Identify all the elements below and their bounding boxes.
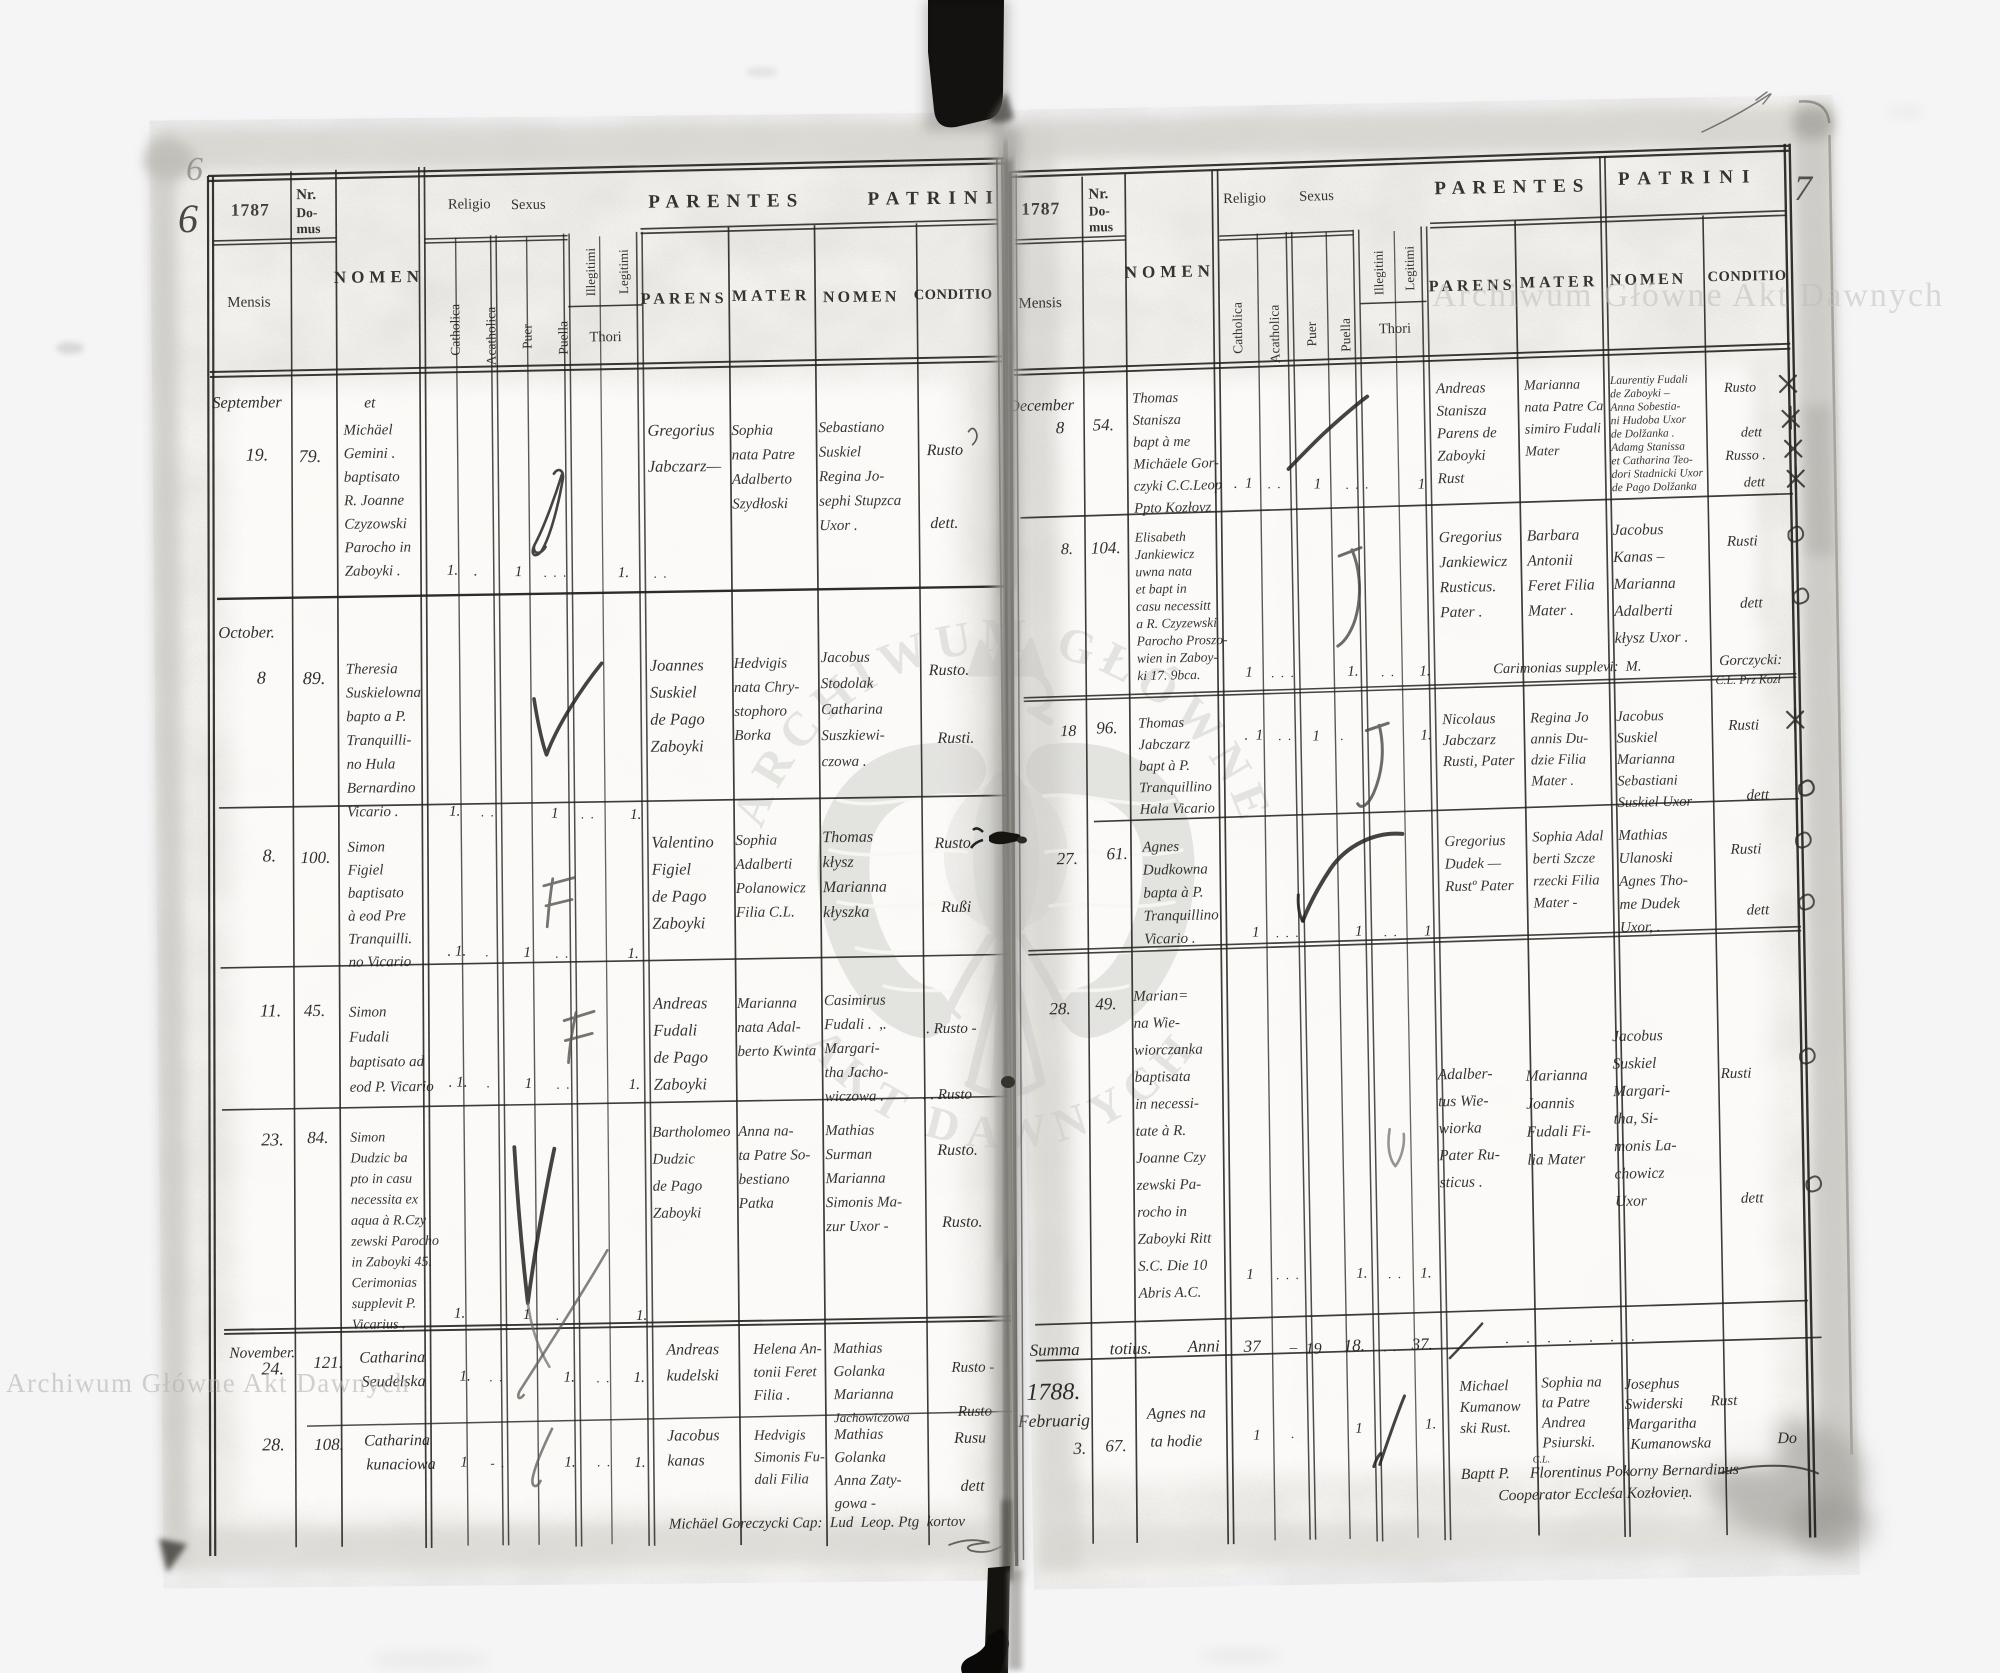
svg-text:Stanisza: Stanisza: [1436, 403, 1486, 420]
svg-text:Vicario .: Vicario .: [1144, 931, 1196, 948]
svg-text:Puella: Puella: [1338, 318, 1354, 352]
svg-text:totius.: totius.: [1109, 1339, 1151, 1359]
svg-text:me Dudek: me Dudek: [1619, 896, 1680, 913]
svg-text:Catholica: Catholica: [447, 304, 462, 356]
svg-text:. . .: . . .: [544, 565, 567, 580]
svg-text:Nr.: Nr.: [1088, 186, 1108, 202]
svg-text:19.: 19.: [246, 444, 269, 464]
svg-text:1: 1: [1253, 1428, 1261, 1444]
svg-text:Dudzic ba: Dudzic ba: [349, 1151, 407, 1167]
svg-text:Rusu: Rusu: [953, 1430, 986, 1447]
svg-text:1787: 1787: [231, 199, 270, 219]
svg-text:Marianna: Marianna: [1523, 378, 1580, 394]
svg-text:Mater -: Mater -: [1532, 895, 1577, 912]
svg-text:7: 7: [1794, 168, 1814, 208]
svg-text:Agnes: Agnes: [1141, 839, 1179, 856]
svg-text:bestiano: bestiano: [739, 1171, 790, 1187]
svg-text:Nr.: Nr.: [296, 187, 316, 203]
svg-text:kłysz Uxor .: kłysz Uxor .: [1615, 629, 1689, 647]
svg-text:. 1: . 1: [1234, 476, 1253, 492]
svg-text:Simon: Simon: [350, 1130, 385, 1145]
svg-text:dett: dett: [1741, 1190, 1765, 1206]
svg-text:bapta à P.: bapta à P.: [1143, 885, 1203, 902]
svg-text:45.: 45.: [304, 1001, 325, 1020]
svg-text:Mathias: Mathias: [1617, 827, 1668, 844]
svg-text:NOMEN: NOMEN: [1125, 261, 1216, 282]
svg-text:Kanas –: Kanas –: [1612, 548, 1665, 566]
svg-text:Illegitini: Illegitini: [1371, 250, 1387, 295]
svg-text:et bapt in: et bapt in: [1136, 581, 1188, 597]
svg-text:Michael: Michael: [1458, 1378, 1508, 1395]
svg-text:1787: 1787: [1021, 198, 1060, 219]
svg-text:Baptt P.: Baptt P.: [1461, 1465, 1510, 1483]
svg-text:Swiderski: Swiderski: [1625, 1396, 1684, 1413]
svg-text:Uxor .: Uxor .: [819, 518, 857, 534]
svg-text:1.: 1.: [627, 946, 638, 962]
svg-text:1.: 1.: [1356, 1266, 1368, 1282]
svg-text:kanas: kanas: [667, 1452, 704, 1469]
svg-text:Theresia: Theresia: [346, 661, 398, 677]
svg-text:de Pago Dolžanka: de Pago Dolžanka: [1612, 481, 1697, 495]
svg-text:Mathias: Mathias: [832, 1341, 882, 1357]
svg-text:.: .: [485, 944, 488, 959]
svg-text:Fudali: Fudali: [652, 1020, 698, 1039]
svg-text:Simon: Simon: [349, 1004, 387, 1020]
svg-text:zewski Pa-: zewski Pa-: [1135, 1177, 1201, 1194]
svg-text:Agnes Tho-: Agnes Tho-: [1618, 873, 1688, 890]
svg-text:dett: dett: [961, 1478, 986, 1495]
svg-text:rocho in: rocho in: [1137, 1204, 1187, 1221]
svg-text:October.: October.: [218, 622, 275, 642]
svg-text:Margari-: Margari-: [823, 1041, 879, 1058]
svg-text:Patka: Patka: [738, 1196, 774, 1212]
svg-text:. Rusto -: . Rusto -: [926, 1021, 977, 1037]
svg-text:Dudkowna: Dudkowna: [1142, 861, 1208, 878]
svg-text:1: 1: [460, 1455, 468, 1471]
svg-text:Laurentiy Fudali: Laurentiy Fudali: [1609, 374, 1688, 387]
svg-text:Fudali . ,.: Fudali . ,.: [823, 1017, 887, 1034]
svg-text:. .: . .: [557, 1077, 570, 1092]
svg-text:Jachowiczowa: Jachowiczowa: [834, 1409, 910, 1425]
svg-text:Jacobus: Jacobus: [1616, 708, 1664, 725]
svg-text:1.: 1.: [1419, 663, 1431, 679]
svg-text:Anna Sobestia-: Anna Sobestia-: [1609, 401, 1680, 414]
svg-text:Surman: Surman: [825, 1147, 872, 1163]
svg-text:Thori: Thori: [589, 329, 621, 345]
svg-text:de Pago: de Pago: [653, 1047, 708, 1067]
svg-text:Tranquilli-: Tranquilli-: [346, 732, 411, 749]
svg-text:baptisato ad: baptisato ad: [349, 1054, 424, 1071]
svg-text:nata Patre: nata Patre: [732, 447, 796, 464]
svg-text:. 1: . 1: [1244, 727, 1263, 743]
svg-text:Michäele Gor-: Michäele Gor-: [1132, 455, 1219, 473]
svg-text:Rusti: Rusti: [1720, 1066, 1752, 1083]
svg-text:de Zaboyki –: de Zaboyki –: [1610, 387, 1670, 400]
svg-text:nata Patre Ca: nata Patre Ca: [1524, 399, 1603, 415]
svg-text:Kumanow: Kumanow: [1459, 1399, 1521, 1416]
svg-text:Jacobus: Jacobus: [821, 650, 870, 666]
svg-text:Adamg Stanissa: Adamg Stanissa: [1610, 441, 1685, 454]
svg-text:Bartholomeo: Bartholomeo: [652, 1124, 731, 1141]
svg-text:à eod Pre: à eod Pre: [348, 908, 406, 925]
svg-text:. .: . .: [1268, 476, 1281, 491]
svg-text:96.: 96.: [1096, 718, 1118, 737]
svg-text:Simonis Ma-: Simonis Ma-: [826, 1194, 902, 1211]
svg-text:dzie Filia: dzie Filia: [1531, 752, 1586, 769]
svg-text:Andreas: Andreas: [652, 993, 708, 1013]
svg-text:Nicolaus: Nicolaus: [1441, 711, 1496, 728]
svg-text:mus: mus: [296, 221, 320, 236]
svg-text:. . .: . . .: [1276, 925, 1299, 940]
svg-text:NOMEN: NOMEN: [823, 288, 899, 306]
svg-text:Casimirus: Casimirus: [824, 993, 886, 1010]
svg-text:3.: 3.: [1072, 1439, 1086, 1458]
svg-text:Figiel: Figiel: [347, 862, 384, 878]
svg-text:1: 1: [1245, 665, 1253, 681]
svg-text:1: 1: [515, 564, 523, 580]
svg-text:Uxor: Uxor: [1615, 1192, 1648, 1210]
svg-text:ta Patre: ta Patre: [1542, 1395, 1591, 1412]
svg-text:de Dolžanka .: de Dolžanka .: [1611, 427, 1675, 440]
svg-text:11.: 11.: [260, 1000, 281, 1020]
svg-text:1: 1: [1252, 925, 1260, 941]
svg-text:ki 17. 9bca.: ki 17. 9bca.: [1137, 667, 1200, 683]
svg-text:8: 8: [257, 667, 266, 687]
svg-text:kłysz: kłysz: [823, 854, 855, 871]
svg-text:Catharina: Catharina: [359, 1349, 425, 1367]
svg-text:Stodolak: Stodolak: [821, 676, 874, 693]
svg-text:Marianna: Marianna: [736, 995, 797, 1012]
svg-text:Jacobus: Jacobus: [667, 1427, 720, 1445]
svg-text:C.L. Prz Kozł: C.L. Prz Kozł: [1715, 672, 1781, 687]
svg-text:19: 19: [1306, 1340, 1322, 1357]
svg-text:annis Du-: annis Du-: [1530, 730, 1588, 747]
svg-text:ski Rust.: ski Rust.: [1460, 1420, 1511, 1437]
svg-text:Figiel: Figiel: [651, 859, 692, 878]
svg-text:1.: 1.: [633, 1370, 644, 1386]
svg-text:Jabczarz: Jabczarz: [1442, 732, 1496, 749]
svg-text:nata Chry-: nata Chry-: [734, 679, 800, 696]
svg-text:100.: 100.: [300, 848, 330, 867]
svg-text:Zaboyki: Zaboyki: [652, 913, 706, 933]
svg-text:tus Wie-: tus Wie-: [1438, 1092, 1489, 1110]
svg-text:dett: dett: [1746, 787, 1770, 803]
svg-text:Marianna: Marianna: [1616, 751, 1675, 768]
svg-text:Michäel Goreczycki Cap: Lud: Michäel Goreczycki Cap: Lud Leop. Ptg ko…: [668, 1514, 966, 1533]
svg-text:Sophia: Sophia: [735, 833, 777, 849]
svg-text:- .: - .: [490, 1455, 504, 1470]
svg-text:Rusto.: Rusto.: [936, 1142, 978, 1159]
svg-text:Zaboyki .: Zaboyki .: [345, 563, 401, 580]
svg-text:Rusto: Rusto: [957, 1404, 993, 1420]
svg-text:Parens de: Parens de: [1436, 425, 1497, 442]
svg-text:mus: mus: [1089, 219, 1113, 234]
svg-text:dett: dett: [1741, 425, 1763, 440]
svg-text:Anna Zaty-: Anna Zaty-: [833, 1472, 901, 1489]
svg-text:8.: 8.: [1061, 541, 1073, 558]
svg-text:Gemini .: Gemini .: [344, 446, 396, 462]
svg-text:1: 1: [1314, 476, 1322, 492]
svg-text:. .: . .: [1383, 1339, 1396, 1354]
svg-text:18.: 18.: [1343, 1336, 1365, 1355]
svg-text:Religio: Religio: [1223, 190, 1266, 207]
svg-text:Mathias: Mathias: [824, 1123, 874, 1139]
svg-text:Sophia Adal: Sophia Adal: [1532, 828, 1603, 845]
svg-text:Valentino: Valentino: [651, 832, 714, 852]
svg-text:Gorczycki:: Gorczycki:: [1719, 652, 1782, 669]
svg-text:6: 6: [186, 151, 203, 188]
svg-text:ta Patre So-: ta Patre So-: [738, 1147, 810, 1164]
svg-text:Filia .: Filia .: [753, 1387, 791, 1403]
svg-text:Catharina: Catharina: [364, 1432, 430, 1450]
svg-text:Puer: Puer: [519, 324, 534, 349]
svg-text:Suszkiewi-: Suszkiewi-: [821, 728, 884, 745]
svg-text:Suskiel Uxor: Suskiel Uxor: [1618, 794, 1693, 811]
svg-text:1.: 1.: [630, 807, 641, 823]
svg-text:Margari-: Margari-: [1612, 1082, 1670, 1100]
svg-text:Thori: Thori: [1379, 321, 1412, 338]
svg-text:Mater .: Mater .: [1527, 602, 1574, 620]
svg-text:Do-: Do-: [296, 205, 317, 220]
svg-text:Hedvigis: Hedvigis: [753, 1427, 806, 1444]
svg-text:eod P. Vicario: eod P. Vicario: [350, 1079, 435, 1096]
svg-text:Jankiewicz: Jankiewicz: [1135, 546, 1195, 562]
svg-text:Illegitimi: Illegitimi: [583, 248, 598, 297]
svg-text:Russo .: Russo .: [1724, 448, 1766, 464]
svg-text:Thomas: Thomas: [1138, 715, 1185, 732]
svg-text:Golanka: Golanka: [834, 1450, 886, 1466]
svg-text:1.: 1.: [1420, 727, 1432, 743]
svg-text:1.: 1.: [634, 1455, 645, 1471]
svg-text:Marianna: Marianna: [833, 1386, 894, 1403]
svg-text:Hala Vicario: Hala Vicario: [1139, 800, 1215, 817]
svg-text:tate à R.: tate à R.: [1136, 1123, 1187, 1140]
svg-text:dett.: dett.: [930, 515, 958, 532]
svg-text:in necessi-: in necessi-: [1135, 1096, 1199, 1113]
svg-text:Rust: Rust: [1437, 471, 1466, 488]
svg-text:Pater Ru-: Pater Ru-: [1438, 1146, 1500, 1164]
svg-text:Archiwum Główne Akt Dawnych: Archiwum Główne Akt Dawnych: [1432, 277, 1944, 314]
svg-text:Mater: Mater: [1524, 444, 1560, 460]
svg-text:Thomas: Thomas: [822, 829, 873, 846]
svg-text:Summa: Summa: [1029, 1340, 1079, 1360]
svg-text:1.: 1.: [636, 1308, 647, 1324]
svg-text:et Catharina Teo-: et Catharina Teo-: [1611, 454, 1693, 467]
svg-text:89.: 89.: [303, 668, 326, 688]
svg-text:na Wie-: na Wie-: [1134, 1015, 1181, 1032]
svg-text:czyki C.C.Leop: czyki C.C.Leop: [1134, 477, 1222, 495]
svg-text:Adalberti: Adalberti: [1613, 602, 1673, 620]
svg-text:Barbara: Barbara: [1527, 527, 1580, 545]
svg-text:zewski Parocho: zewski Parocho: [350, 1234, 439, 1250]
svg-text:Jankiewicz: Jankiewicz: [1439, 553, 1507, 571]
svg-text:Marian=: Marian=: [1132, 988, 1188, 1005]
svg-text:Thomas: Thomas: [1132, 390, 1179, 407]
svg-text:a R. Czyzewski: a R. Czyzewski: [1136, 615, 1217, 631]
svg-text:. .: . .: [581, 806, 594, 821]
svg-text:. 1.: . 1.: [447, 944, 466, 960]
svg-text:Sexus: Sexus: [511, 197, 546, 213]
svg-text:Szydłoski: Szydłoski: [732, 496, 788, 513]
svg-text:gowa -: gowa -: [835, 1496, 876, 1512]
svg-text:Czyzowski: Czyzowski: [344, 516, 407, 533]
svg-text:stophoro: stophoro: [734, 703, 787, 720]
svg-text:. .: . .: [596, 1370, 609, 1385]
svg-text:. .: . .: [1388, 1266, 1401, 1281]
svg-text:. 1.: . 1.: [449, 1075, 468, 1091]
svg-text:Fudali: Fudali: [348, 1029, 389, 1045]
svg-text:tha Jacho-: tha Jacho-: [825, 1065, 889, 1082]
svg-text:Do: Do: [1776, 1430, 1797, 1447]
svg-text:. . .: . . .: [1346, 476, 1369, 491]
svg-text:Religio: Religio: [448, 196, 491, 212]
svg-text:dali Filia: dali Filia: [754, 1471, 809, 1488]
svg-text:Psiurski.: Psiurski.: [1541, 1434, 1595, 1451]
svg-text:84.: 84.: [307, 1128, 328, 1147]
svg-text:Bernardino: Bernardino: [347, 780, 416, 797]
svg-text:37: 37: [1242, 1337, 1262, 1356]
svg-text:Rusti: Rusti: [1726, 533, 1758, 550]
svg-text:no Hula: no Hula: [347, 756, 396, 772]
svg-text:1: 1: [1418, 476, 1426, 492]
svg-text:Rußi: Rußi: [940, 899, 971, 916]
svg-text:kunaciowa: kunaciowa: [366, 1456, 435, 1474]
svg-text:Catharina: Catharina: [821, 702, 883, 719]
svg-text:Marianna: Marianna: [822, 879, 887, 897]
svg-text:1: 1: [525, 1076, 533, 1092]
svg-text:37.: 37.: [1410, 1334, 1433, 1353]
svg-text:Suskielowna: Suskielowna: [346, 685, 421, 702]
svg-text:18: 18: [1060, 723, 1076, 740]
svg-text:Rusto: Rusto: [933, 835, 971, 852]
svg-text:PARENS: PARENS: [641, 290, 728, 308]
svg-text:dett: dett: [1747, 902, 1771, 918]
svg-text:lia Mater: lia Mater: [1527, 1151, 1586, 1169]
svg-text:Zaboyki: Zaboyki: [653, 1205, 701, 1221]
svg-text:S.C. Die 10: S.C. Die 10: [1138, 1258, 1208, 1275]
svg-text:Marianna: Marianna: [1525, 1067, 1589, 1085]
svg-text:Joannes: Joannes: [650, 655, 704, 675]
svg-text:Zaboyki: Zaboyki: [650, 736, 704, 756]
svg-text:de Pago: de Pago: [652, 886, 707, 906]
svg-text:Pater .: Pater .: [1439, 603, 1482, 621]
svg-text:6: 6: [178, 196, 198, 241]
svg-text:Februarig: Februarig: [1017, 1410, 1091, 1431]
svg-text:Gregorius: Gregorius: [647, 420, 714, 440]
svg-text:.: .: [474, 563, 478, 579]
svg-text:104.: 104.: [1091, 538, 1121, 558]
svg-text:Rust: Rust: [1710, 1393, 1739, 1410]
svg-text:Cooperator Eccleśa Kozłovieṇ: Cooperator Eccleśa Kozłovieṇ.: [1498, 1484, 1692, 1505]
svg-text:et: et: [364, 394, 376, 411]
svg-text:Mathias: Mathias: [833, 1427, 883, 1443]
svg-text:Do-: Do-: [1089, 203, 1110, 218]
svg-text:49.: 49.: [1095, 994, 1117, 1013]
svg-text:Andreas: Andreas: [665, 1341, 719, 1359]
svg-text:necessita ex: necessita ex: [351, 1192, 419, 1208]
svg-text:Rusto.: Rusto.: [941, 1214, 983, 1231]
svg-text:Ppto Kozłovz: Ppto Kozłovz: [1133, 499, 1212, 516]
svg-text:Margaritha: Margaritha: [1626, 1416, 1697, 1433]
svg-text:PARENTES: PARENTES: [648, 190, 804, 212]
svg-text:tha, Si-: tha, Si-: [1613, 1110, 1658, 1128]
svg-text:uwna nata: uwna nata: [1135, 563, 1192, 579]
svg-text:Gregorius: Gregorius: [1439, 528, 1502, 546]
svg-text:Sophia na: Sophia na: [1541, 1374, 1602, 1391]
svg-text:Uxor, .: Uxor, .: [1620, 919, 1661, 936]
svg-text:no Vicario: no Vicario: [348, 954, 411, 971]
svg-text:23.: 23.: [261, 1129, 284, 1149]
svg-text:1.: 1.: [459, 1369, 470, 1385]
svg-text:Rusto.: Rusto.: [928, 662, 970, 679]
svg-text:casu necessitt: casu necessitt: [1136, 598, 1212, 614]
svg-text:Simon: Simon: [347, 839, 385, 855]
svg-text:Tranquilli.: Tranquilli.: [348, 931, 412, 948]
svg-text:Adalberto: Adalberto: [731, 471, 793, 488]
svg-text:1: 1: [1246, 1267, 1254, 1283]
svg-text:Archiwum Główne Akt Dawnych: Archiwum Główne Akt Dawnych: [6, 1368, 410, 1398]
svg-text:Kumanowska: Kumanowska: [1629, 1435, 1711, 1452]
svg-text:Helena An-: Helena An-: [752, 1341, 822, 1358]
svg-text:Borka: Borka: [734, 728, 771, 744]
svg-text:bapt à P.: bapt à P.: [1139, 758, 1190, 775]
svg-text:baptisato: baptisato: [348, 885, 404, 902]
svg-text:wiczowa .: wiczowa .: [825, 1089, 884, 1106]
svg-text:berto Kwinta: berto Kwinta: [737, 1043, 816, 1060]
svg-text:PATRINI: PATRINI: [867, 187, 1001, 209]
svg-text:Andreas: Andreas: [1435, 380, 1486, 397]
svg-text:kłyszka: kłyszka: [823, 904, 869, 921]
svg-text:1.: 1.: [1420, 1265, 1432, 1281]
svg-text:Rusti: Rusti: [1727, 717, 1759, 734]
svg-text:.: .: [487, 1075, 490, 1090]
svg-text:. .: . .: [1278, 728, 1291, 743]
svg-text:Rusti.: Rusti.: [936, 730, 974, 747]
svg-text:de Pago: de Pago: [650, 709, 705, 729]
svg-text:Rusti, Pater: Rusti, Pater: [1442, 753, 1515, 770]
svg-text:. .: . .: [481, 804, 494, 819]
svg-text:. . .: . . .: [1276, 1267, 1299, 1282]
svg-text:dett: dett: [1744, 475, 1766, 490]
svg-text:Rusto -: Rusto -: [950, 1360, 994, 1376]
svg-text:monis La-: monis La-: [1614, 1137, 1677, 1155]
svg-text:Jacobus: Jacobus: [1612, 1027, 1663, 1045]
svg-text:Adalberti: Adalberti: [735, 856, 793, 873]
svg-text:1.: 1.: [454, 1306, 465, 1322]
svg-text:1: 1: [551, 806, 559, 822]
svg-text:1.: 1.: [449, 804, 460, 820]
svg-text:Rusto: Rusto: [926, 442, 964, 459]
svg-text:Acatholica: Acatholica: [1267, 305, 1283, 364]
svg-text:baptisato: baptisato: [344, 469, 400, 486]
svg-text:de Pago: de Pago: [653, 1178, 703, 1194]
svg-text:61.: 61.: [1106, 844, 1128, 863]
svg-text:sephi Stupzca: sephi Stupzca: [819, 493, 901, 510]
svg-text:. .: . .: [489, 1369, 502, 1384]
svg-text:1.: 1.: [629, 1077, 640, 1093]
svg-text:Suskiel: Suskiel: [1612, 1055, 1656, 1073]
svg-text:ta hodie: ta hodie: [1150, 1433, 1202, 1451]
svg-text:Anni: Anni: [1186, 1336, 1220, 1356]
svg-text:in Zaboyki 45.: in Zaboyki 45.: [351, 1255, 432, 1271]
svg-text:Andrea: Andrea: [1541, 1415, 1586, 1432]
svg-text:Tranquillino: Tranquillino: [1144, 907, 1220, 924]
svg-text:1.: 1.: [563, 1370, 574, 1386]
svg-text:Dudzic: Dudzic: [651, 1151, 695, 1167]
svg-text:Sebastiano: Sebastiano: [818, 420, 884, 437]
svg-text:Legitimi: Legitimi: [616, 249, 631, 294]
svg-text:Mensis: Mensis: [227, 294, 271, 310]
